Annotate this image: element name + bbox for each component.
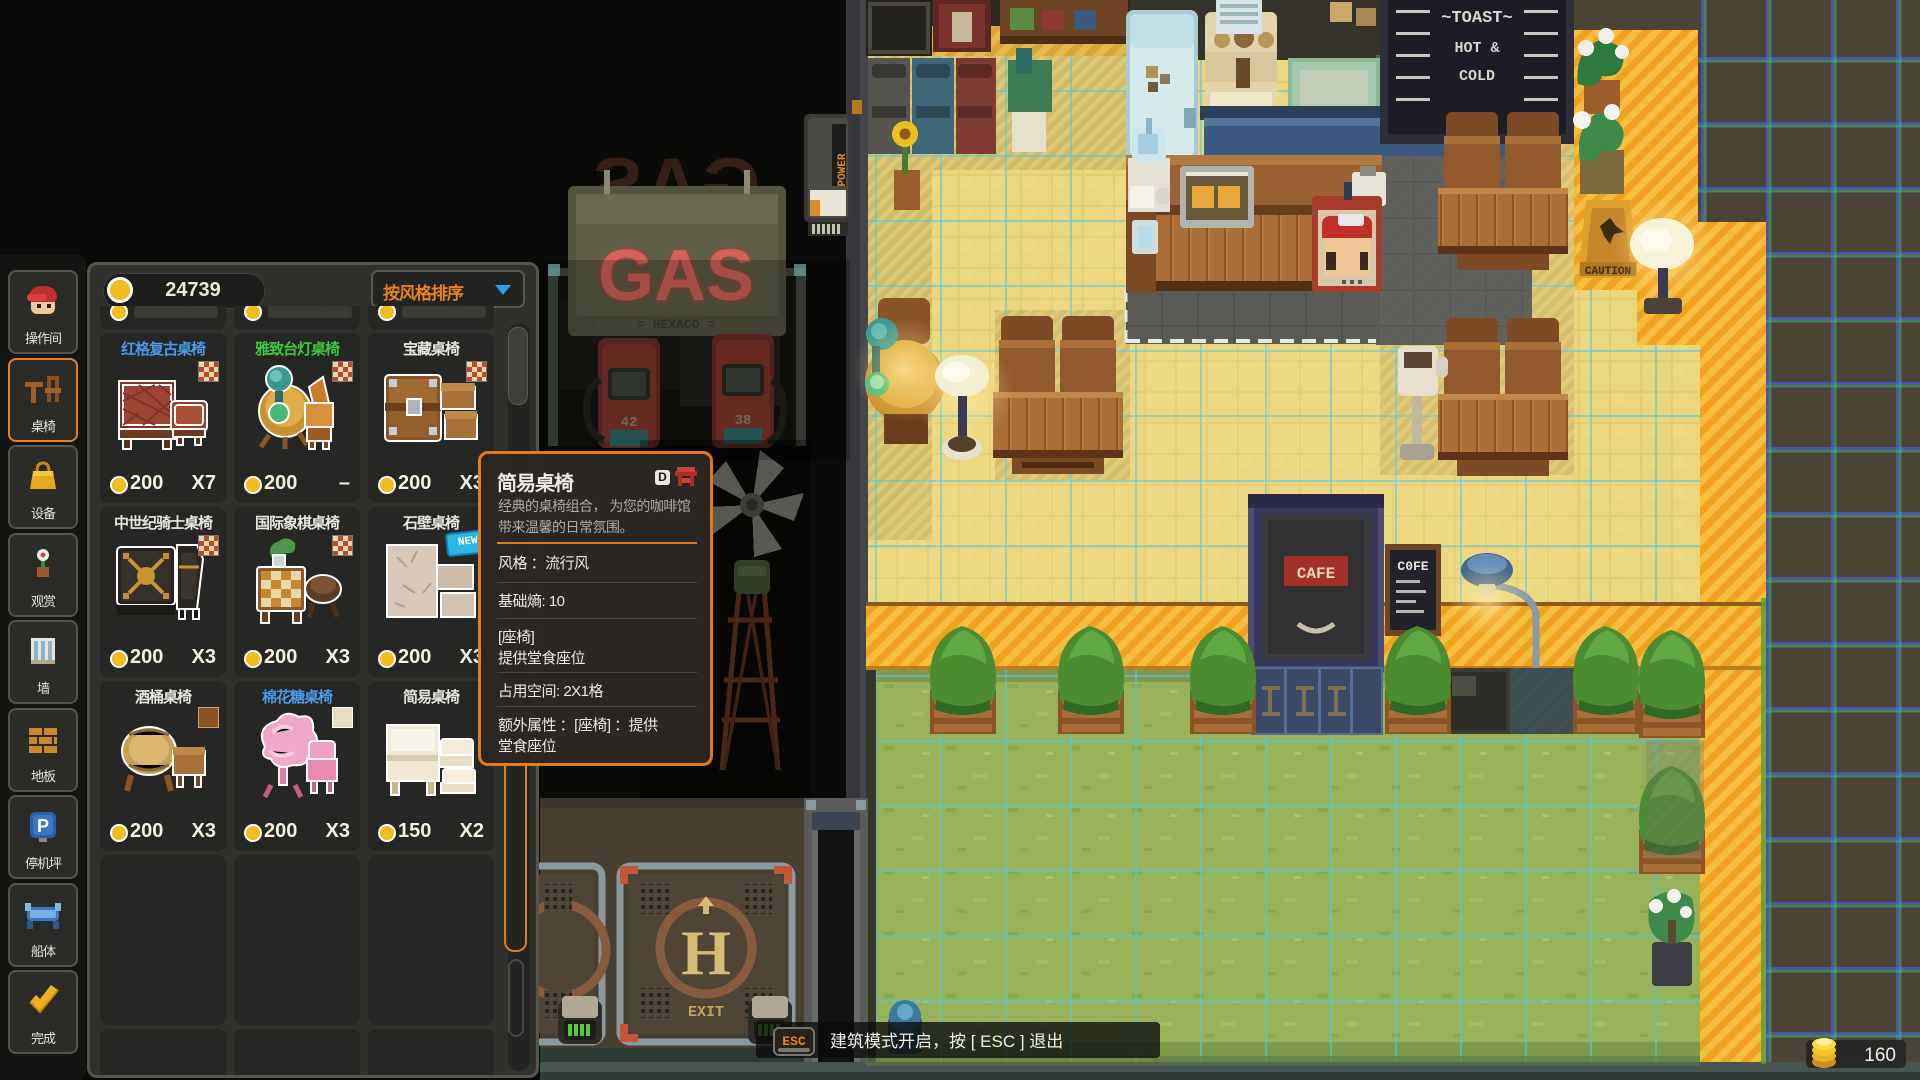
svg-text:CAFE: CAFE	[1297, 565, 1335, 583]
svg-text:建筑模式开启，按 [ ESC ] 退出: 建筑模式开启，按 [ ESC ] 退出	[830, 1032, 1063, 1051]
svg-text:~TOAST~: ~TOAST~	[1441, 9, 1512, 28]
svg-text:C0FE: C0FE	[1397, 559, 1428, 574]
svg-text:HOT &: HOT &	[1454, 40, 1499, 57]
svg-text:COLD: COLD	[1459, 68, 1495, 85]
svg-text:P: P	[37, 816, 49, 836]
svg-text:H: H	[681, 917, 731, 988]
svg-text:ESC: ESC	[782, 1034, 806, 1049]
svg-text:EXIT: EXIT	[688, 1004, 724, 1021]
svg-text:160: 160	[1864, 1045, 1896, 1066]
svg-text:POWER: POWER	[837, 153, 849, 186]
